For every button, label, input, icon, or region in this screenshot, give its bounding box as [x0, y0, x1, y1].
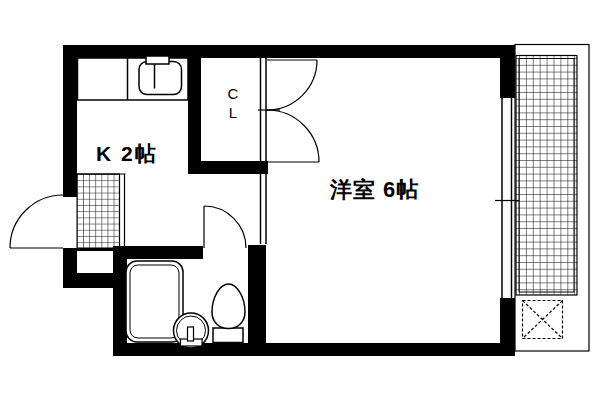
floorplan: K 2帖 C L 洋室 6帖 — [0, 0, 600, 400]
wall-right-lower — [500, 298, 515, 343]
wall-bathroom-right — [248, 245, 266, 356]
western-room-label: 洋室 6帖 — [330, 175, 442, 205]
faucet-icon — [146, 56, 169, 64]
toilet-icon — [212, 284, 245, 329]
wall-bottom-main — [113, 343, 515, 356]
wash-basin-faucet — [188, 327, 194, 341]
floorplan-drawing — [0, 0, 600, 400]
wall-bathroom-top — [113, 246, 203, 259]
kitchen-room-label: K 2帖 — [96, 140, 180, 168]
genkan-tile-hatch — [77, 174, 120, 248]
wall-left-upper — [63, 45, 77, 197]
wall-top — [63, 45, 515, 58]
genkan — [77, 174, 126, 248]
entrance-door-arc — [10, 195, 63, 248]
bathroom-door-swing-icon — [204, 206, 246, 248]
closet-double-door-icon — [258, 58, 319, 162]
toilet-tank — [213, 328, 243, 343]
balcony — [515, 45, 589, 352]
wall-bathroom-left — [113, 248, 127, 356]
bathroom-door-arc — [204, 206, 246, 248]
closet-door-arc-top — [267, 60, 317, 110]
closet-door-arc-bottom — [267, 110, 319, 162]
wall-closet-bottom — [188, 161, 268, 174]
dashed-x-marker — [523, 301, 563, 339]
kitchen-counter — [78, 56, 189, 100]
balcony-deck-hatch — [516, 56, 577, 296]
wall-kitchen-closet — [188, 45, 201, 163]
closet-label: C L — [223, 84, 243, 122]
bathroom-fixtures — [126, 261, 245, 348]
kitchen-sink-icon — [139, 62, 182, 95]
entrance-door-swing-icon — [10, 195, 63, 248]
partition-door — [261, 174, 267, 244]
wall-right-upper — [500, 45, 515, 98]
